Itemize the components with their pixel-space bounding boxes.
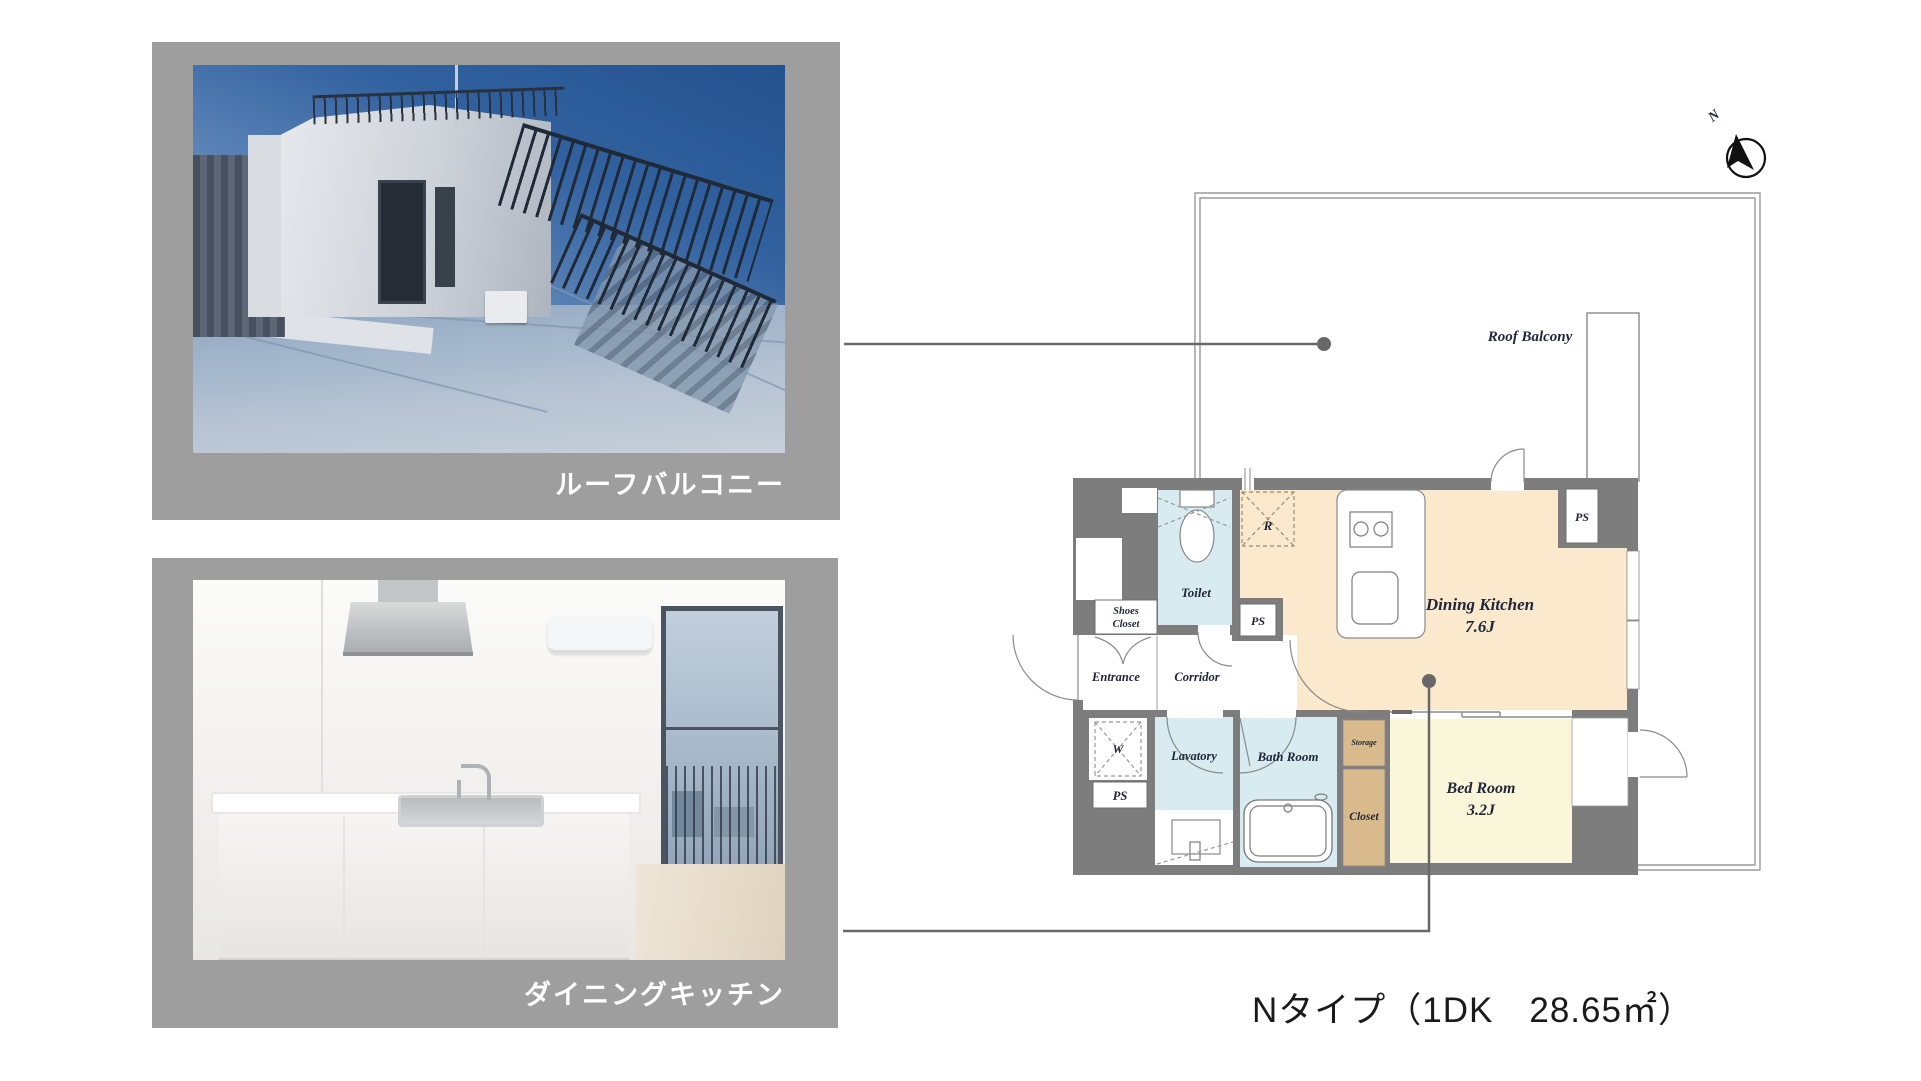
washing-machine-label: W <box>1113 742 1125 756</box>
balcony-door-arc <box>1491 449 1524 482</box>
bedroom-pocket <box>1572 718 1628 806</box>
lavatory-door-opening <box>1167 710 1223 718</box>
storage-label: Storage <box>1351 738 1377 747</box>
dining-kitchen-label: Dining Kitchen <box>1425 595 1534 614</box>
bed-room-label: Bed Room <box>1446 780 1516 797</box>
wall-notch <box>1122 488 1157 513</box>
page: ルーフバルコニー ダイニングキッチン <box>0 0 1921 1081</box>
balcony-door-opening <box>1491 478 1524 491</box>
north-label: N <box>1705 107 1724 126</box>
toilet-tank <box>1180 490 1214 507</box>
toilet-door-opening <box>1198 625 1230 635</box>
entrance-door-arc <box>1013 635 1078 700</box>
ps-label-top: PS <box>1575 510 1589 524</box>
bedroom-balcony-door-arc <box>1640 730 1687 777</box>
entrance-label: Entrance <box>1091 670 1140 684</box>
connector-dot-kitchen <box>1422 674 1436 688</box>
lavatory-label: Lavatory <box>1170 749 1217 763</box>
ps-label-mid: PS <box>1251 614 1265 628</box>
corridor-label: Corridor <box>1174 670 1219 684</box>
balcony-shaft <box>1587 313 1639 481</box>
dining-kitchen-size: 7.6J <box>1465 617 1495 636</box>
floor-plan: Roof Balcony N <box>0 0 1921 1081</box>
toilet-bowl <box>1180 510 1214 562</box>
lavatory-room <box>1155 717 1233 810</box>
refrigerator-label: R <box>1263 518 1273 533</box>
vanity-sink <box>1172 820 1220 854</box>
toilet-label: Toilet <box>1181 585 1211 600</box>
plan-title: Nタイプ（1DK 28.65㎡） <box>1252 982 1694 1033</box>
bed-room-size: 3.2J <box>1466 802 1496 819</box>
connector-dot-roof <box>1317 337 1331 351</box>
window-sash <box>1627 621 1639 689</box>
shoes-closet-label-2: Closet <box>1113 619 1141 630</box>
bath-room-label: Bath Room <box>1256 749 1318 764</box>
bathtub <box>1244 800 1332 862</box>
roof-balcony-label: Roof Balcony <box>1487 329 1573 345</box>
bath-door-opening <box>1240 710 1296 718</box>
ps-label-left: PS <box>1113 789 1128 803</box>
closet-label: Closet <box>1349 811 1379 823</box>
shoes-closet-label-1: Shoes <box>1113 606 1139 617</box>
north-arrow-icon: N <box>1705 107 1765 177</box>
window-sash <box>1627 551 1639 621</box>
wall-vent <box>1242 478 1254 490</box>
wall-recess <box>1076 538 1122 600</box>
balcony-door-opening-right <box>1628 732 1640 777</box>
